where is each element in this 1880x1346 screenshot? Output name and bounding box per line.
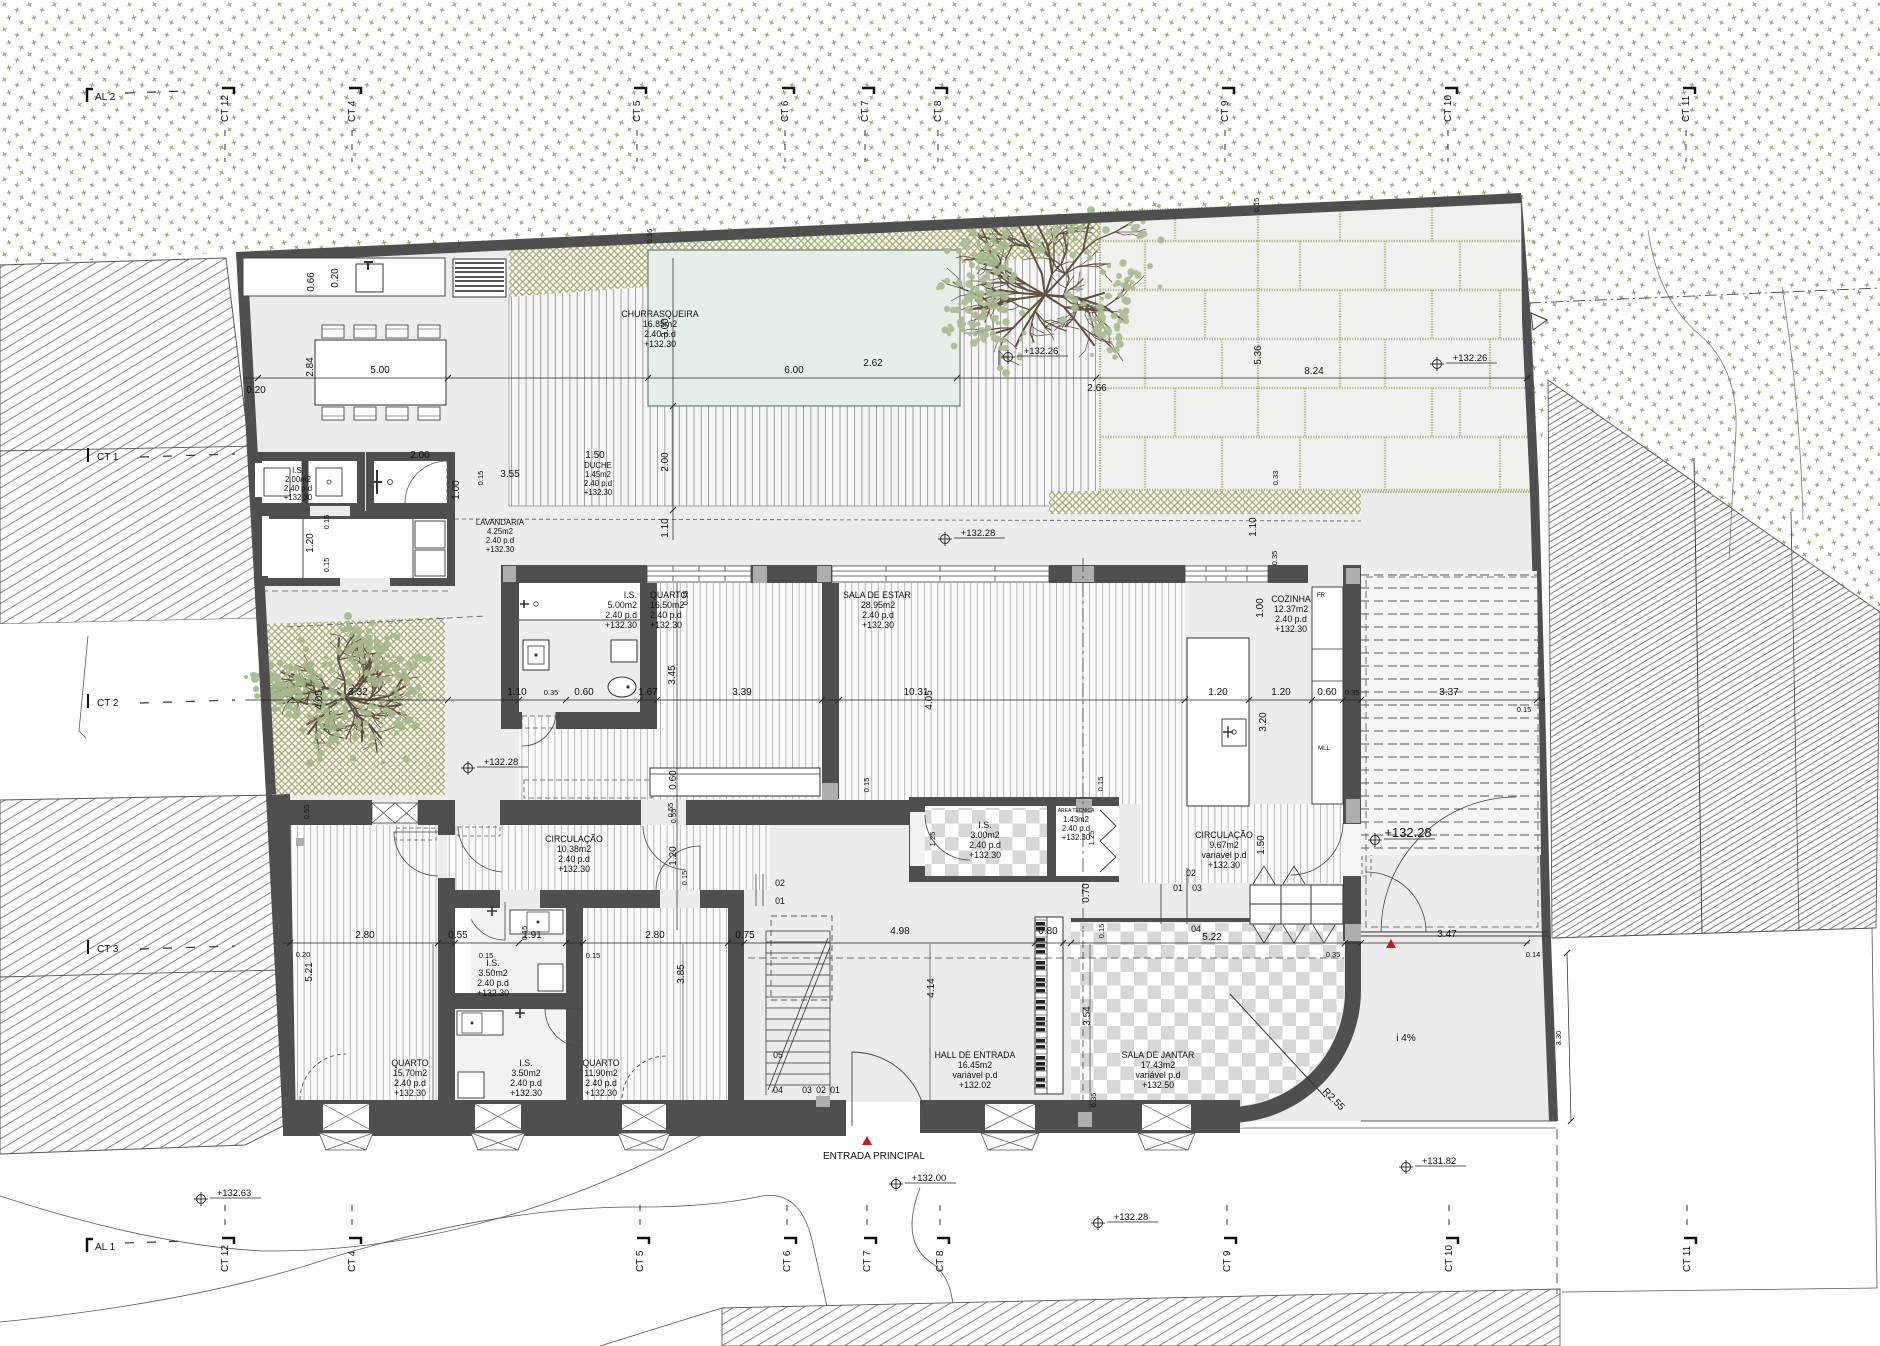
svg-text:16.50m2: 16.50m2 <box>650 600 684 610</box>
svg-text:17.43m2: 17.43m2 <box>1141 1060 1175 1070</box>
svg-text:2.40 p.d: 2.40 p.d <box>477 978 509 988</box>
svg-text:1.10: 1.10 <box>507 687 527 698</box>
svg-text:05: 05 <box>773 1050 783 1060</box>
svg-text:CIRCULAÇÃO: CIRCULAÇÃO <box>545 834 603 844</box>
svg-text:0.15: 0.15 <box>322 515 331 530</box>
svg-text:8.24: 8.24 <box>1304 366 1324 377</box>
svg-text:0.80: 0.80 <box>1038 926 1058 937</box>
svg-text:1.00: 1.00 <box>1255 598 1266 618</box>
svg-text:3.50m2: 3.50m2 <box>478 968 507 978</box>
svg-text:2.40 p.d: 2.40 p.d <box>1275 614 1307 624</box>
svg-text:CT 12: CT 12 <box>220 95 231 122</box>
svg-text:FR: FR <box>1317 593 1326 599</box>
svg-text:15.70m2: 15.70m2 <box>393 1068 427 1078</box>
svg-text:3.00m2: 3.00m2 <box>970 830 999 840</box>
svg-text:+132.02: +132.02 <box>959 1080 991 1090</box>
svg-text:2.40 p.d: 2.40 p.d <box>1062 824 1090 833</box>
svg-text:4.25m2: 4.25m2 <box>487 527 513 536</box>
svg-text:1.67: 1.67 <box>638 687 658 698</box>
svg-text:2.40 p.d: 2.40 p.d <box>584 479 612 488</box>
svg-text:2.62: 2.62 <box>863 358 883 369</box>
svg-text:+132.50: +132.50 <box>1142 1080 1174 1090</box>
svg-text:+132.26: +132.26 <box>1453 353 1488 364</box>
svg-text:3.50m2: 3.50m2 <box>511 1068 540 1078</box>
svg-text:3.20: 3.20 <box>1258 712 1269 732</box>
svg-text:1.20: 1.20 <box>1271 687 1291 698</box>
svg-text:+132.30: +132.30 <box>1208 860 1240 870</box>
svg-text:5.00m2: 5.00m2 <box>608 600 637 610</box>
svg-text:AL 1: AL 1 <box>95 1242 116 1253</box>
svg-text:0.20: 0.20 <box>246 385 266 396</box>
svg-text:CT 10: CT 10 <box>1444 1245 1455 1272</box>
svg-text:0.15: 0.15 <box>586 951 601 960</box>
svg-text:03: 03 <box>802 1085 812 1095</box>
svg-text:CT 12: CT 12 <box>220 1245 231 1272</box>
svg-text:2.00: 2.00 <box>660 452 671 472</box>
svg-text:CT 10: CT 10 <box>1443 95 1454 122</box>
svg-text:0.15: 0.15 <box>322 558 331 573</box>
svg-text:+132.30: +132.30 <box>644 339 676 349</box>
svg-text:16.45m2: 16.45m2 <box>958 1060 992 1070</box>
svg-text:CT 7: CT 7 <box>862 1250 873 1272</box>
svg-text:2.40 p.d: 2.40 p.d <box>284 484 312 493</box>
svg-text:3.85: 3.85 <box>676 964 687 984</box>
svg-text:3.54: 3.54 <box>1082 1006 1093 1026</box>
svg-text:0.20: 0.20 <box>296 950 311 959</box>
svg-text:variável p.d: variável p.d <box>1202 850 1247 860</box>
svg-text:CT 2: CT 2 <box>97 698 119 709</box>
svg-text:CHURRASQUEIRA: CHURRASQUEIRA <box>621 309 698 319</box>
svg-text:SALA DE ESTAR: SALA DE ESTAR <box>843 590 911 600</box>
svg-text:3.55: 3.55 <box>500 469 520 480</box>
svg-text:+132.28: +132.28 <box>484 757 519 768</box>
svg-text:QUARTO: QUARTO <box>650 590 687 600</box>
svg-text:1.00: 1.00 <box>451 480 462 500</box>
svg-text:0.66: 0.66 <box>306 272 317 292</box>
svg-text:CT 7: CT 7 <box>860 100 871 122</box>
svg-text:0.35: 0.35 <box>1270 551 1279 566</box>
svg-text:2.40 p.d: 2.40 p.d <box>394 1078 426 1088</box>
svg-text:0.15: 0.15 <box>1252 198 1261 213</box>
svg-text:ÁREA TÉCNICA: ÁREA TÉCNICA <box>1058 807 1095 814</box>
svg-text:4.98: 4.98 <box>890 926 910 937</box>
svg-text:2.40 p.d: 2.40 p.d <box>650 610 682 620</box>
svg-text:CT 6: CT 6 <box>782 1250 793 1272</box>
svg-text:+132.30: +132.30 <box>394 1088 426 1098</box>
svg-text:02: 02 <box>1186 868 1196 878</box>
svg-text:11.90m2: 11.90m2 <box>584 1068 618 1078</box>
svg-text:1.20: 1.20 <box>1208 687 1228 698</box>
svg-text:CT 1: CT 1 <box>97 452 119 463</box>
svg-text:0.60: 0.60 <box>1317 687 1337 698</box>
svg-text:+132.63: +132.63 <box>217 1188 252 1199</box>
svg-text:2.40 p.d: 2.40 p.d <box>585 1078 617 1088</box>
svg-text:+132.30: +132.30 <box>558 864 590 874</box>
svg-text:0.15: 0.15 <box>1517 705 1532 714</box>
svg-text:0.75: 0.75 <box>735 930 755 941</box>
svg-text:2.84: 2.84 <box>305 357 316 377</box>
svg-text:0.16: 0.16 <box>645 229 654 244</box>
svg-text:variável p.d: variável p.d <box>953 1070 998 1080</box>
svg-text:2.40 p.d: 2.40 p.d <box>862 610 894 620</box>
svg-text:+132.30: +132.30 <box>477 988 509 998</box>
svg-text:6.00: 6.00 <box>784 365 804 376</box>
svg-text:0.33: 0.33 <box>1271 471 1280 486</box>
svg-text:I.S.: I.S. <box>519 1058 532 1068</box>
svg-text:MLL: MLL <box>1318 746 1330 752</box>
svg-text:04: 04 <box>773 1085 783 1095</box>
svg-text:CT 5: CT 5 <box>635 1250 646 1272</box>
svg-text:01: 01 <box>830 1085 840 1095</box>
svg-text:3.45: 3.45 <box>667 665 678 685</box>
svg-text:3.47: 3.47 <box>1437 929 1457 940</box>
svg-text:0.55: 0.55 <box>448 930 468 941</box>
svg-text:0.35: 0.35 <box>1345 688 1360 697</box>
svg-text:variável p.d: variável p.d <box>1136 1070 1181 1080</box>
svg-text:0.20: 0.20 <box>330 268 341 288</box>
svg-text:1.45m2: 1.45m2 <box>585 470 611 479</box>
svg-text:2.40 p.d: 2.40 p.d <box>558 854 590 864</box>
svg-text:0.60: 0.60 <box>574 687 594 698</box>
svg-text:5.36: 5.36 <box>1253 345 1264 365</box>
svg-text:+132.30: +132.30 <box>284 493 313 502</box>
svg-text:1.50: 1.50 <box>1256 835 1267 855</box>
svg-text:0.35: 0.35 <box>1326 950 1341 959</box>
svg-text:1.25: 1.25 <box>928 832 937 847</box>
svg-text:+132.30: +132.30 <box>510 1088 542 1098</box>
svg-text:1.43m2: 1.43m2 <box>1063 815 1089 824</box>
svg-text:CT 8: CT 8 <box>933 100 944 122</box>
svg-text:+132.28: +132.28 <box>1114 1212 1149 1223</box>
svg-text:LAVANDARIA: LAVANDARIA <box>476 518 525 527</box>
svg-text:COZINHA: COZINHA <box>1271 594 1311 604</box>
svg-text:0.70: 0.70 <box>1081 883 1092 903</box>
svg-text:DUCHE: DUCHE <box>584 461 612 470</box>
svg-text:+132.30: +132.30 <box>650 620 682 630</box>
svg-text:5.00: 5.00 <box>370 365 390 376</box>
svg-text:+132.00: +132.00 <box>912 1173 947 1184</box>
svg-text:+132.28: +132.28 <box>961 528 996 539</box>
svg-text:3.39: 3.39 <box>732 687 752 698</box>
svg-text:I.S.: I.S. <box>978 820 991 830</box>
svg-text:0.35: 0.35 <box>1089 1093 1098 1108</box>
svg-text:01: 01 <box>1173 883 1183 893</box>
svg-text:0.14: 0.14 <box>1526 950 1541 959</box>
svg-text:+132.30: +132.30 <box>585 1088 617 1098</box>
svg-text:02: 02 <box>816 1085 826 1095</box>
svg-text:5.22: 5.22 <box>1202 932 1222 943</box>
svg-text:0.35: 0.35 <box>544 688 559 697</box>
svg-text:CT 3: CT 3 <box>97 944 119 955</box>
svg-text:i 4%: i 4% <box>1396 1033 1416 1044</box>
svg-text:0.55: 0.55 <box>302 805 311 820</box>
svg-text:I.S.: I.S. <box>624 590 637 600</box>
svg-text:04: 04 <box>1191 924 1201 934</box>
svg-text:0.15: 0.15 <box>520 926 529 941</box>
svg-text:CT 11: CT 11 <box>1682 1245 1693 1272</box>
svg-text:5.21: 5.21 <box>304 962 315 982</box>
svg-text:CT 6: CT 6 <box>780 100 791 122</box>
svg-text:0.15: 0.15 <box>476 471 485 486</box>
svg-text:CT 11: CT 11 <box>1681 95 1692 122</box>
svg-text:ENTRADA PRINCIPAL: ENTRADA PRINCIPAL <box>823 1151 925 1162</box>
svg-text:1.10: 1.10 <box>1248 517 1259 537</box>
svg-text:+132.28: +132.28 <box>1384 825 1431 840</box>
svg-text:CT 5: CT 5 <box>632 100 643 122</box>
svg-text:0.55: 0.55 <box>666 803 675 818</box>
svg-text:1.20: 1.20 <box>668 846 679 866</box>
svg-text:2.80: 2.80 <box>645 930 665 941</box>
svg-text:2.66: 2.66 <box>1087 383 1107 394</box>
svg-text:0.60: 0.60 <box>668 770 679 790</box>
svg-text:SALA DE JANTAR: SALA DE JANTAR <box>1122 1050 1195 1060</box>
svg-text:+132.30: +132.30 <box>969 850 1001 860</box>
svg-text:4.05: 4.05 <box>924 690 935 710</box>
svg-text:2.40 p.d: 2.40 p.d <box>510 1078 542 1088</box>
svg-text:9.67m2: 9.67m2 <box>1209 840 1238 850</box>
svg-text:CT 8: CT 8 <box>935 1250 946 1272</box>
svg-text:16.85m2: 16.85m2 <box>643 319 677 329</box>
svg-text:CT 9: CT 9 <box>1220 100 1231 122</box>
svg-text:2.40 p.d: 2.40 p.d <box>486 536 514 545</box>
svg-text:CT 4: CT 4 <box>347 100 358 122</box>
svg-text:AL 2: AL 2 <box>95 92 116 103</box>
svg-text:2.40 p.d: 2.40 p.d <box>969 840 1001 850</box>
svg-text:1.20: 1.20 <box>305 533 316 553</box>
svg-text:QUARTO: QUARTO <box>582 1058 619 1068</box>
svg-text:+132.30: +132.30 <box>486 545 515 554</box>
svg-text:+132.30: +132.30 <box>1275 624 1307 634</box>
svg-text:QUARTO: QUARTO <box>391 1058 428 1068</box>
svg-text:28.95m2: 28.95m2 <box>861 600 895 610</box>
svg-text:03: 03 <box>1192 883 1202 893</box>
svg-text:2.40 p.d: 2.40 p.d <box>644 329 676 339</box>
svg-text:12.37m2: 12.37m2 <box>1274 604 1308 614</box>
svg-text:HALL DE ENTRADA: HALL DE ENTRADA <box>935 1050 1016 1060</box>
svg-text:3.32: 3.32 <box>348 687 368 698</box>
svg-text:2.40 p.d: 2.40 p.d <box>605 610 637 620</box>
svg-text:1.10: 1.10 <box>660 518 671 538</box>
svg-text:0.15: 0.15 <box>862 778 871 793</box>
svg-text:+132.26: +132.26 <box>1024 346 1059 357</box>
svg-text:4.05: 4.05 <box>314 690 325 710</box>
svg-text:I.S.: I.S. <box>292 466 304 475</box>
svg-text:3.37: 3.37 <box>1439 687 1459 698</box>
svg-text:0.15: 0.15 <box>680 871 689 886</box>
svg-text:0.15: 0.15 <box>1097 924 1106 939</box>
svg-text:+132.30: +132.30 <box>862 620 894 630</box>
svg-text:CIRCULAÇÃO: CIRCULAÇÃO <box>1195 830 1253 840</box>
svg-text:0.15: 0.15 <box>1096 777 1105 792</box>
svg-text:4.14: 4.14 <box>926 978 937 998</box>
svg-text:CT 9: CT 9 <box>1222 1250 1233 1272</box>
svg-text:01: 01 <box>775 896 785 906</box>
svg-text:I.S.: I.S. <box>486 958 499 968</box>
svg-text:+132.30: +132.30 <box>1062 833 1091 842</box>
svg-text:2.00m2: 2.00m2 <box>285 475 311 484</box>
svg-text:02: 02 <box>775 878 785 888</box>
svg-text:2.80: 2.80 <box>355 930 375 941</box>
svg-text:1.50: 1.50 <box>585 450 605 461</box>
svg-text:2.00: 2.00 <box>410 450 430 461</box>
svg-text:+132.30: +132.30 <box>584 488 613 497</box>
svg-text:+131.82: +131.82 <box>1422 1156 1457 1167</box>
svg-text:CT 4: CT 4 <box>347 1250 358 1272</box>
svg-text:+132.30: +132.30 <box>605 620 637 630</box>
svg-text:3.30: 3.30 <box>1554 1031 1563 1046</box>
svg-text:10.38m2: 10.38m2 <box>557 844 591 854</box>
